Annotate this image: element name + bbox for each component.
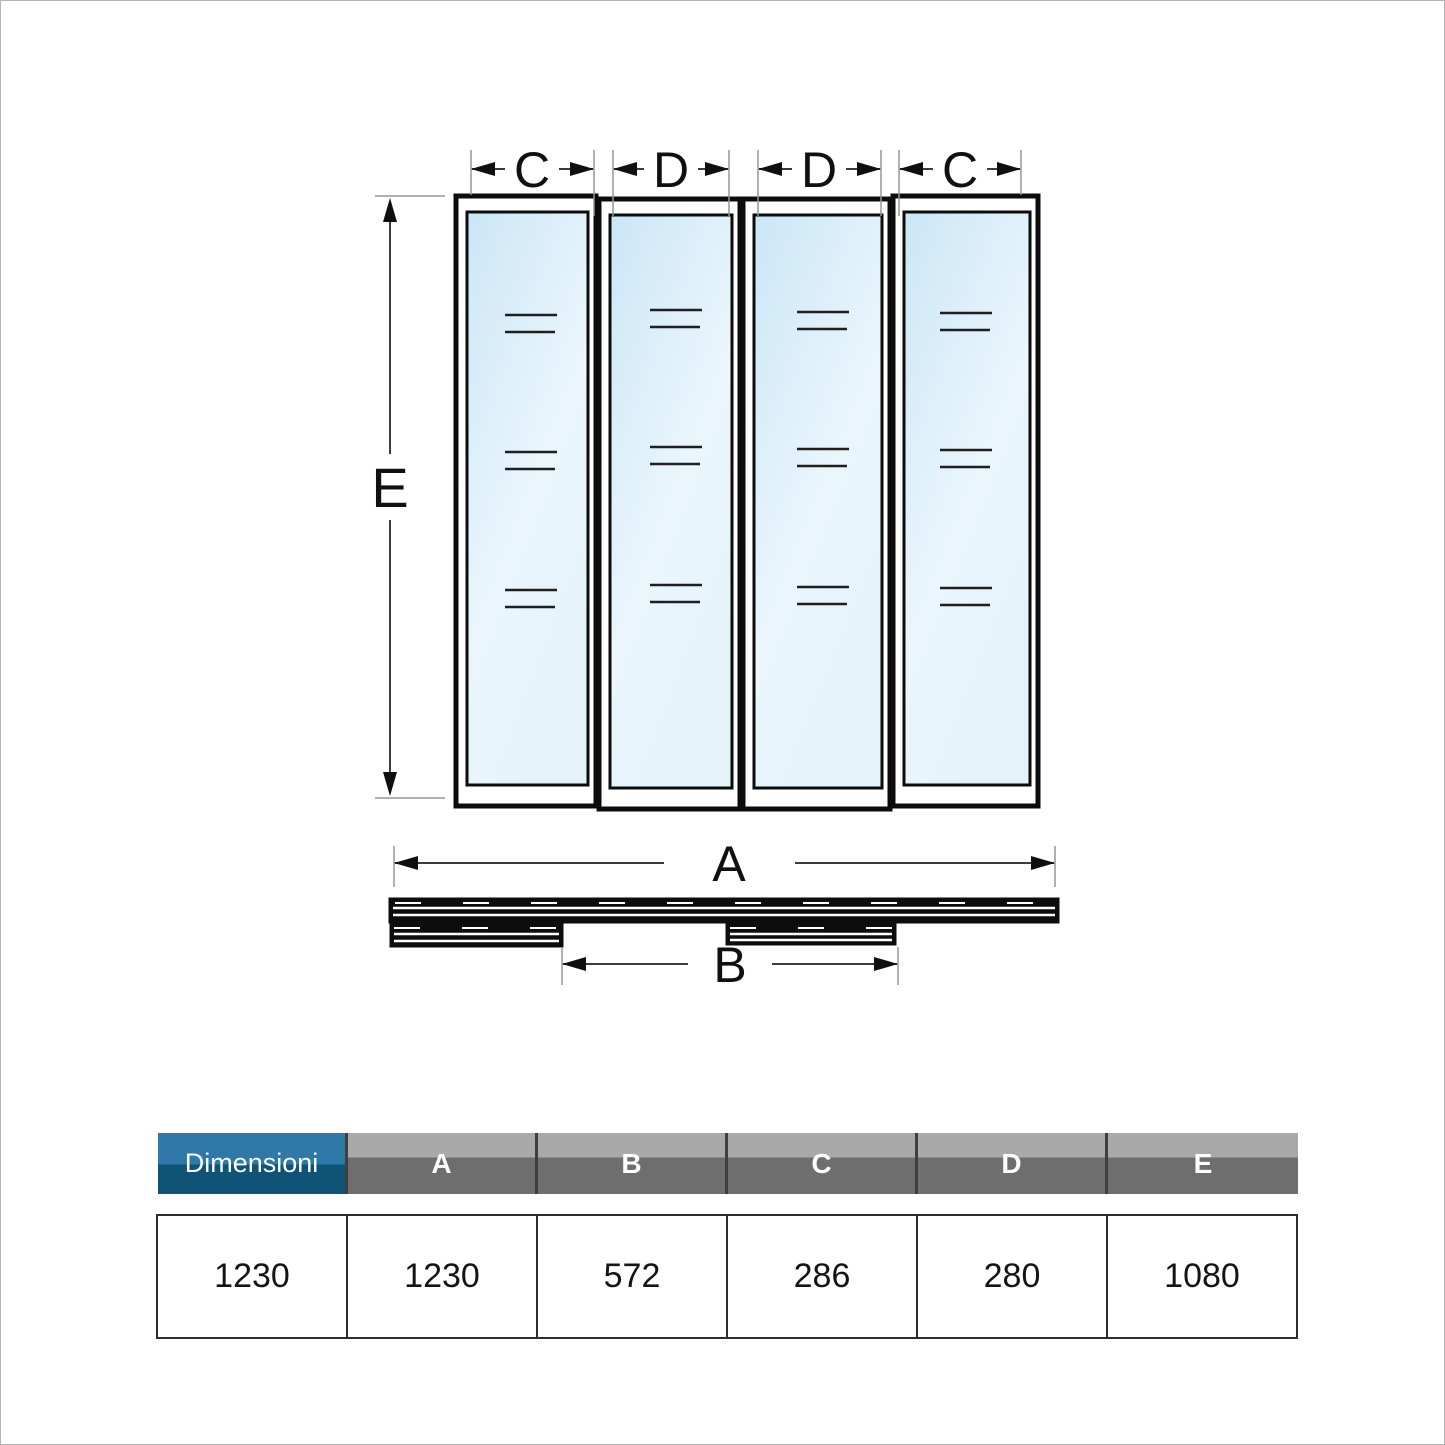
table-value-a: 1230 xyxy=(348,1216,538,1337)
dim-e: E xyxy=(371,196,445,798)
door-panel-2 xyxy=(599,199,740,809)
door-panel-3 xyxy=(743,199,890,809)
table-value-d: 280 xyxy=(918,1216,1108,1337)
table-value-e: 1080 xyxy=(1108,1216,1296,1337)
table-header-b: B xyxy=(538,1133,728,1194)
technical-drawing-page: C D D C xyxy=(0,0,1445,1445)
dimensions-table-header: Dimensioni A B C D E xyxy=(158,1133,1298,1194)
table-header-c: C xyxy=(728,1133,918,1194)
track-rail xyxy=(389,898,1059,923)
dim-label-d-left: D xyxy=(653,142,689,198)
table-header-d: D xyxy=(918,1133,1108,1194)
dim-label-c-right: C xyxy=(942,142,978,198)
dimensions-table-values: 1230 1230 572 286 280 1080 xyxy=(156,1214,1298,1339)
dim-label-b: B xyxy=(713,937,746,993)
dim-label-a: A xyxy=(712,836,746,892)
dim-a: A xyxy=(394,836,1055,892)
door-panel-4 xyxy=(893,196,1038,806)
table-header-a: A xyxy=(348,1133,538,1194)
table-value-dimensioni: 1230 xyxy=(158,1216,348,1337)
table-value-c: 286 xyxy=(728,1216,918,1337)
dim-label-e: E xyxy=(371,456,408,519)
table-value-b: 572 xyxy=(538,1216,728,1337)
table-header-dimensioni: Dimensioni xyxy=(158,1133,348,1194)
dim-label-d-right: D xyxy=(801,142,837,198)
dim-label-c-left: C xyxy=(514,142,550,198)
door-panel-1 xyxy=(456,196,596,806)
table-header-e: E xyxy=(1108,1133,1298,1194)
